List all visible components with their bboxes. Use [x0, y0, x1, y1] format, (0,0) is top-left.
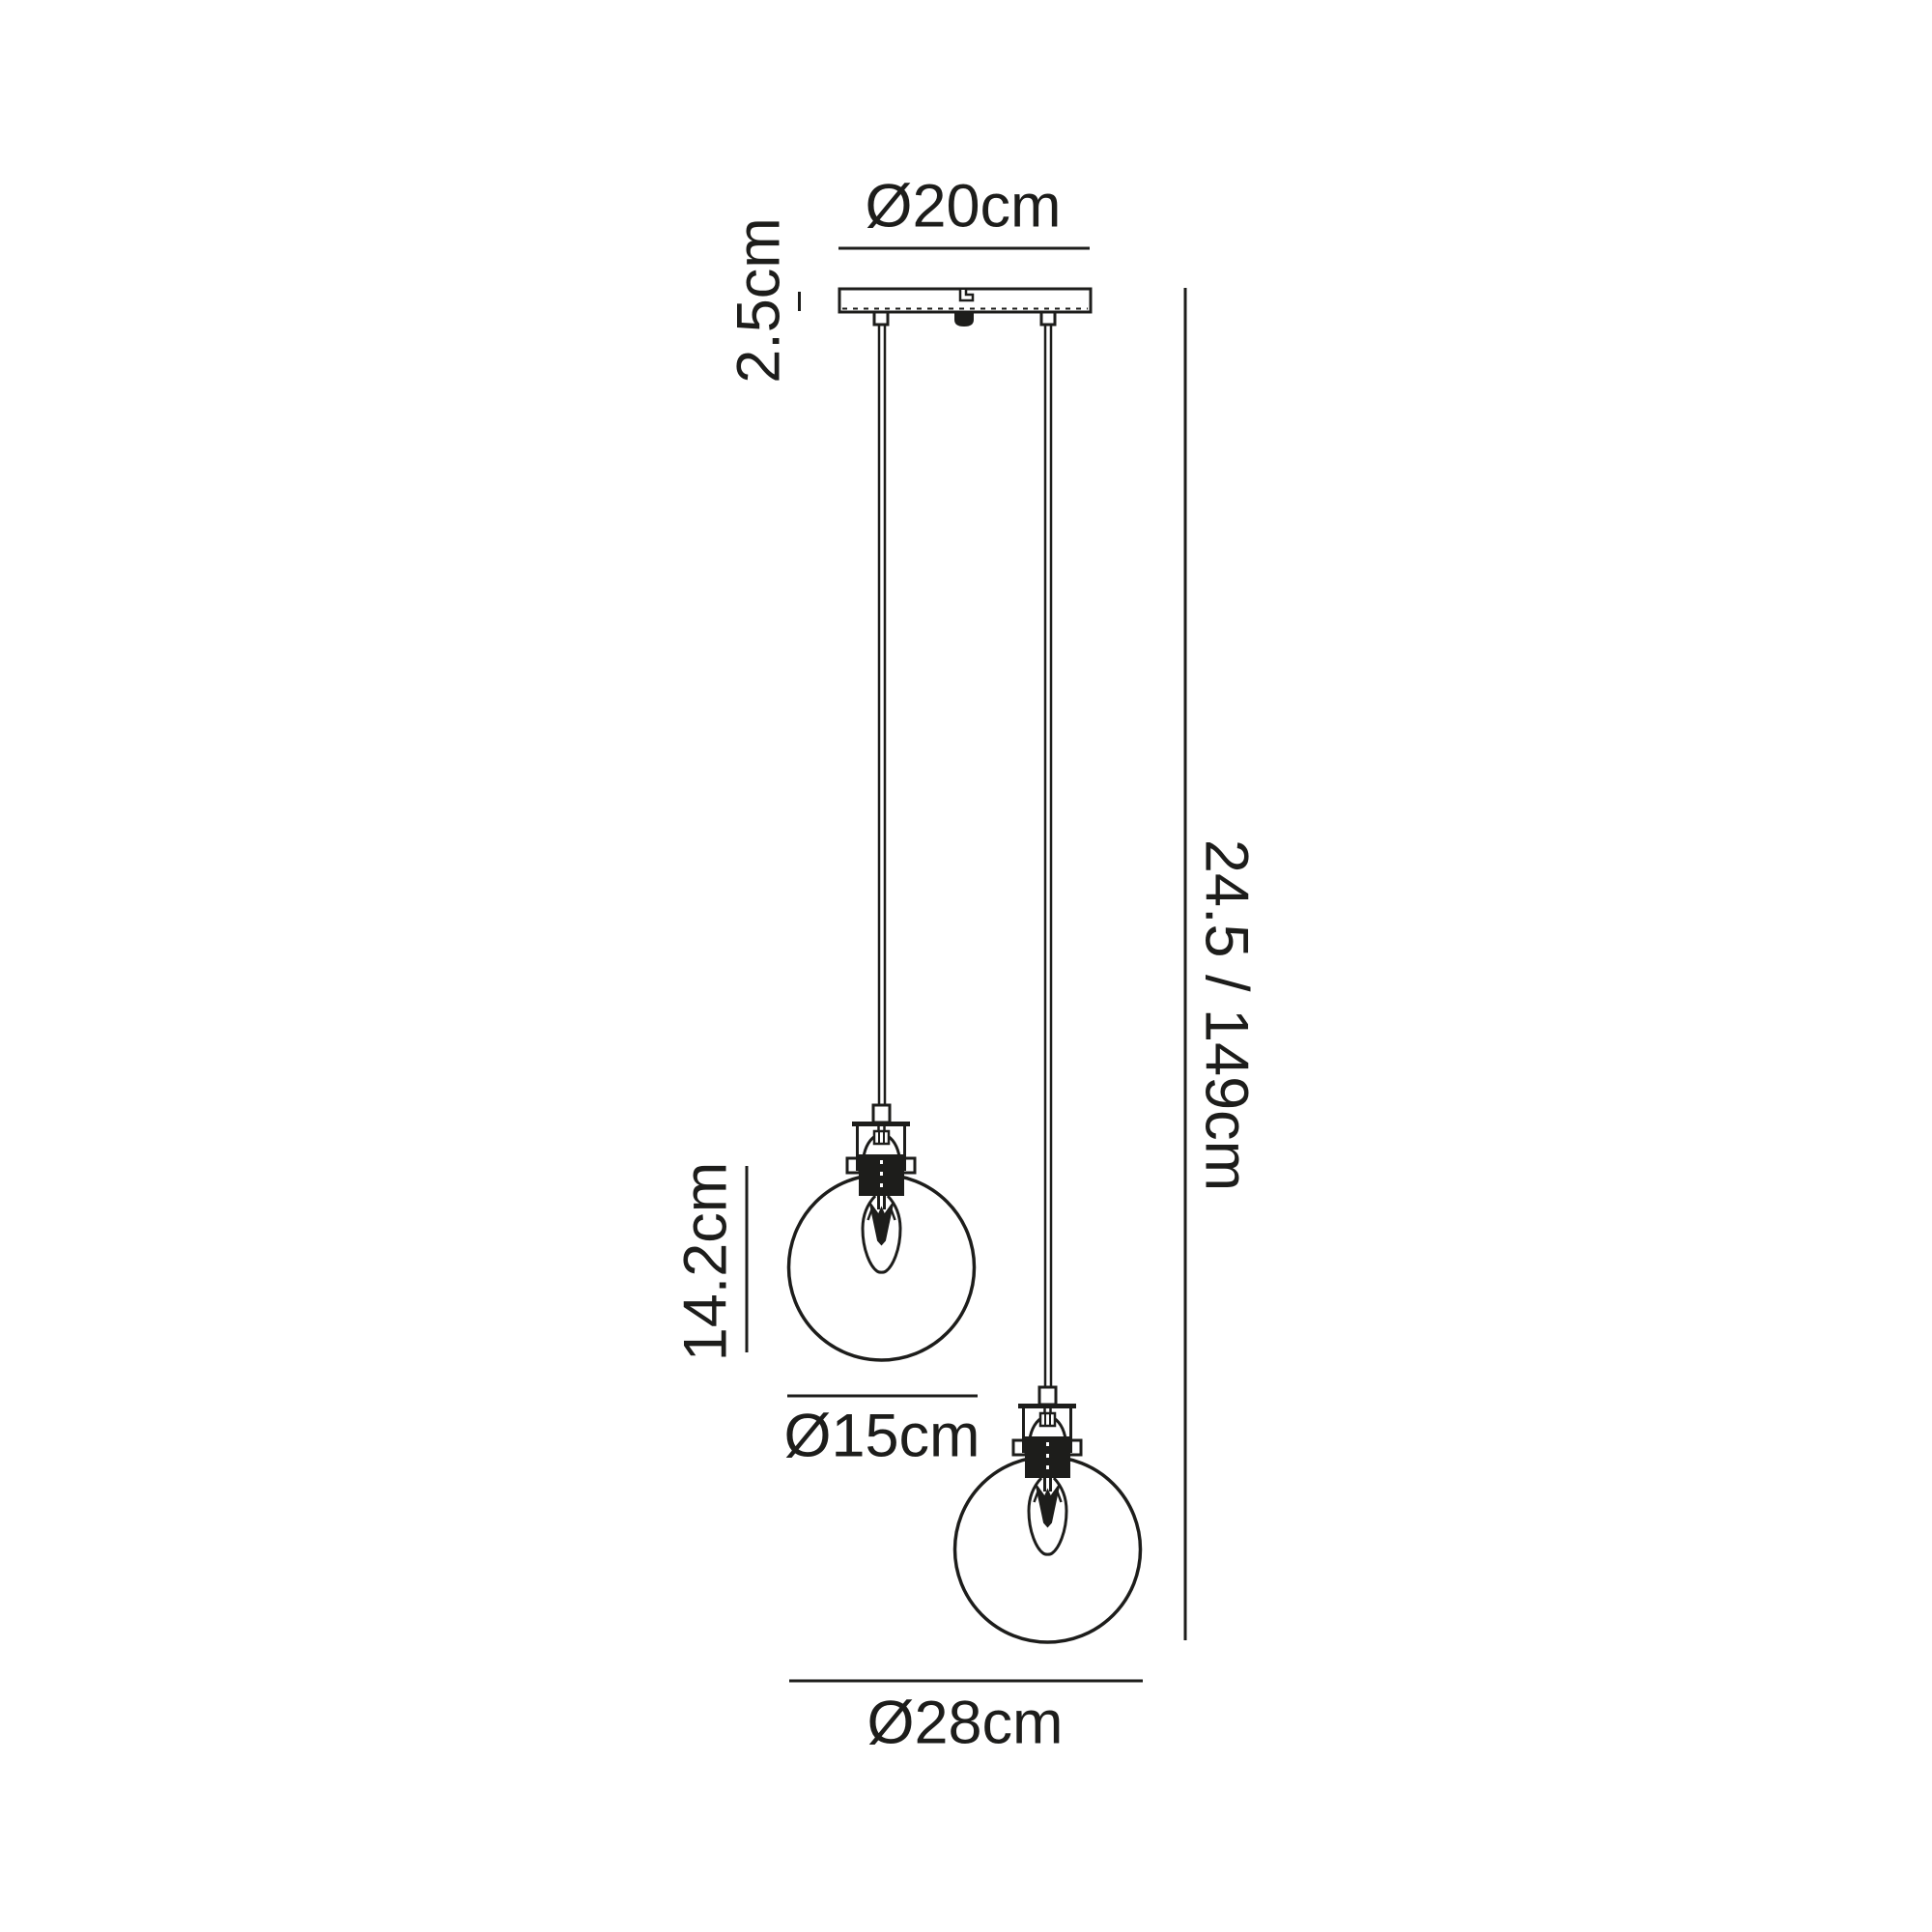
- small-globe-diameter-label: Ø15cm: [783, 1406, 980, 1467]
- large-globe-diameter-label: Ø28cm: [867, 1693, 1063, 1754]
- canopy-height-label: 2.5cm: [729, 217, 790, 384]
- canopy-cord-exit-left: [874, 312, 888, 325]
- canopy-screw: [954, 312, 974, 327]
- pendant-large: [955, 1387, 1141, 1642]
- pendant-small: [789, 1105, 975, 1360]
- small-globe-height-label: 14.2cm: [676, 1162, 737, 1362]
- canopy-diameter-label: Ø20cm: [865, 177, 1061, 238]
- ceiling-plate: [839, 289, 1091, 327]
- cord-left: [879, 326, 885, 1105]
- cord-right: [1045, 326, 1051, 1387]
- canopy-cord-exit-right: [1041, 312, 1055, 325]
- overall-drop-label: 24.5 / 149cm: [1196, 839, 1257, 1191]
- dimension-diagram: Ø20cm 2.5cm 14.2cm Ø15cm 24.5 / 149cm Ø2…: [0, 0, 1932, 1932]
- fixture-linework: [0, 0, 1932, 1932]
